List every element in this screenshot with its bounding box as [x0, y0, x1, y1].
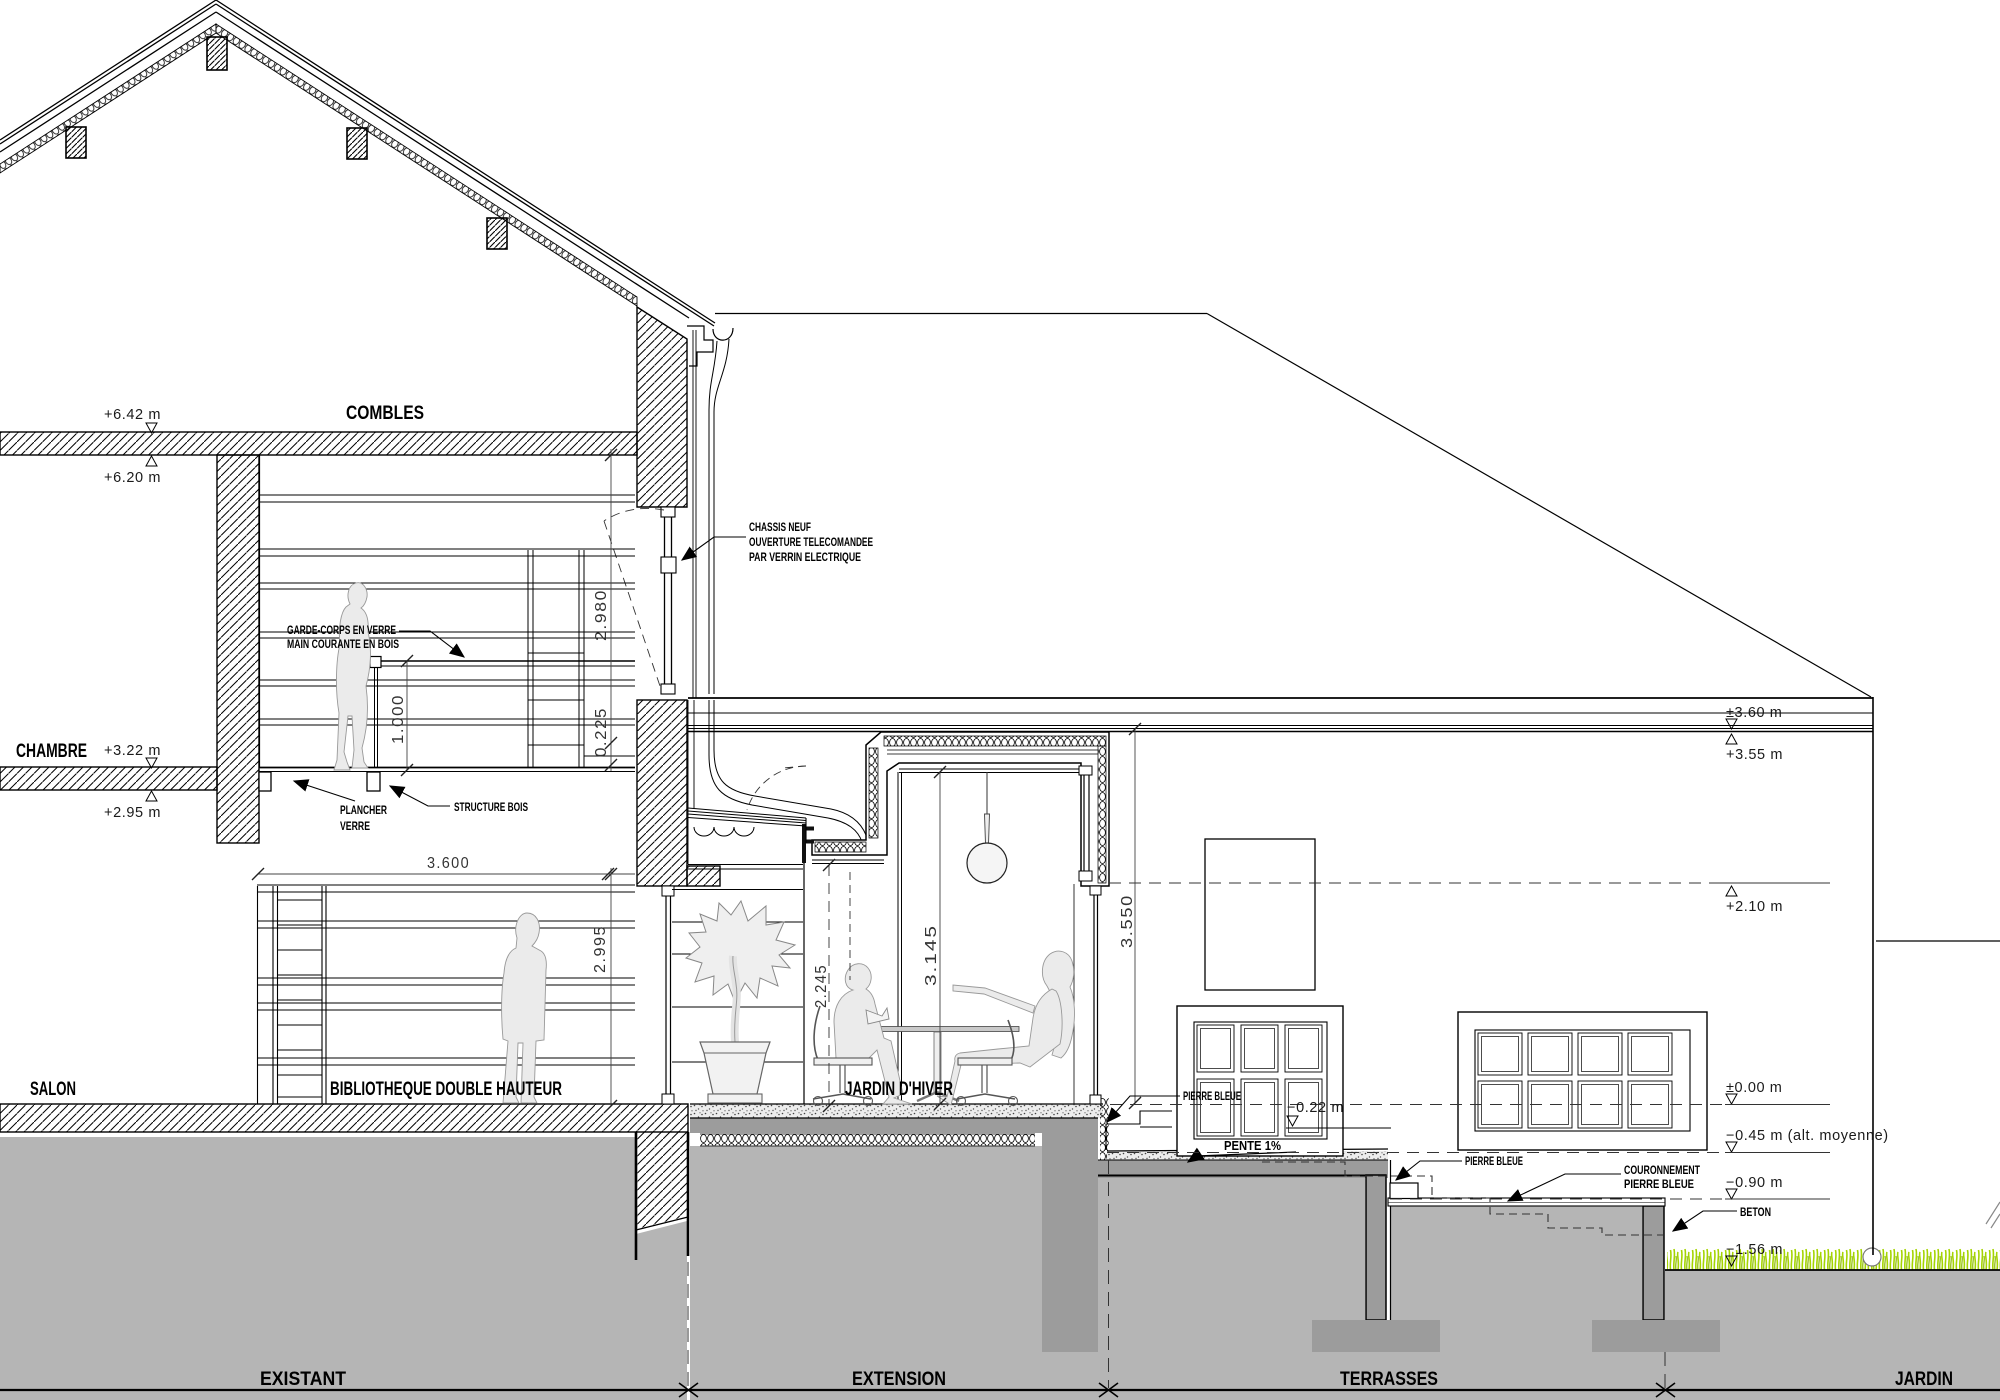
svg-text:OUVERTURE TELECOMANDEE: OUVERTURE TELECOMANDEE	[749, 537, 873, 549]
svg-text:PENTE 1%: PENTE 1%	[1224, 1138, 1281, 1153]
svg-text:COURONNEMENT: COURONNEMENT	[1624, 1165, 1700, 1177]
svg-text:PIERRE BLEUE: PIERRE BLEUE	[1465, 1156, 1523, 1168]
svg-text:EXTENSION: EXTENSION	[852, 1369, 946, 1390]
svg-text:+3.22 m: +3.22 m	[104, 743, 161, 759]
svg-text:JARDIN: JARDIN	[1895, 1369, 1953, 1390]
svg-text:JARDIN D'HIVER: JARDIN D'HIVER	[845, 1079, 953, 1100]
svg-text:VERRE: VERRE	[340, 821, 370, 833]
svg-text:BIBLIOTHEQUE DOUBLE HAUTEUR: BIBLIOTHEQUE DOUBLE HAUTEUR	[330, 1079, 562, 1100]
svg-text:2.995: 2.995	[592, 925, 609, 973]
svg-text:BETON: BETON	[1740, 1207, 1771, 1219]
svg-text:PIERRE BLEUE: PIERRE BLEUE	[1183, 1091, 1241, 1103]
svg-text:2.980: 2.980	[593, 589, 610, 641]
svg-text:+2.95 m: +2.95 m	[104, 805, 161, 821]
svg-text:+6.42 m: +6.42 m	[104, 407, 161, 423]
svg-text:STRUCTURE BOIS: STRUCTURE BOIS	[454, 802, 528, 814]
svg-text:PLANCHER: PLANCHER	[340, 805, 388, 817]
svg-text:3.600: 3.600	[427, 855, 470, 872]
svg-text:+3.55 m: +3.55 m	[1726, 747, 1783, 763]
svg-text:3.145: 3.145	[923, 924, 940, 986]
svg-text:3.550: 3.550	[1119, 894, 1136, 948]
svg-text:MAIN COURANTE EN BOIS: MAIN COURANTE EN BOIS	[287, 639, 399, 651]
svg-text:1.000: 1.000	[390, 694, 407, 744]
svg-text:−0.45 m (alt. moyenne): −0.45 m (alt. moyenne)	[1726, 1128, 1889, 1144]
svg-text:EXISTANT: EXISTANT	[260, 1369, 346, 1390]
svg-text:2.245: 2.245	[813, 964, 830, 1008]
svg-text:SALON: SALON	[30, 1079, 76, 1100]
svg-text:+2.10 m: +2.10 m	[1726, 899, 1783, 915]
svg-text:PIERRE BLEUE: PIERRE BLEUE	[1624, 1179, 1694, 1191]
svg-text:+6.20 m: +6.20 m	[104, 470, 161, 486]
svg-text:0.225: 0.225	[593, 707, 610, 757]
svg-text:GARDE-CORPS EN VERRE: GARDE-CORPS EN VERRE	[287, 625, 396, 637]
svg-text:PAR VERRIN ELECTRIQUE: PAR VERRIN ELECTRIQUE	[749, 552, 861, 564]
svg-text:CHASSIS NEUF: CHASSIS NEUF	[749, 522, 811, 534]
svg-text:−0.22 m: −0.22 m	[1287, 1100, 1344, 1116]
svg-text:TERRASSES: TERRASSES	[1340, 1369, 1438, 1390]
svg-text:COMBLES: COMBLES	[346, 403, 424, 424]
svg-text:CHAMBRE: CHAMBRE	[16, 741, 87, 762]
